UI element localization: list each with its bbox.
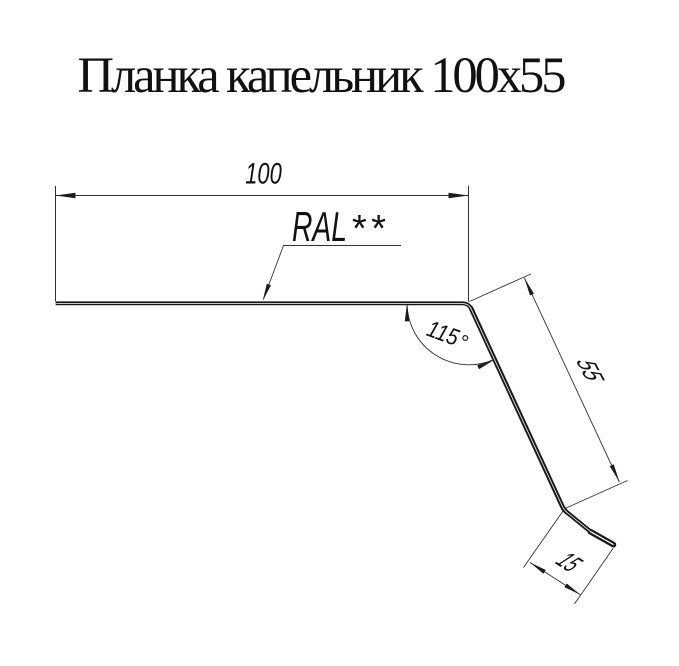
svg-text:Планка капельник 100x55: Планка капельник 100x55 <box>78 47 567 103</box>
svg-text:100: 100 <box>245 158 282 191</box>
svg-text:* *: * * <box>352 208 386 250</box>
svg-text:RAL: RAL <box>292 203 347 250</box>
